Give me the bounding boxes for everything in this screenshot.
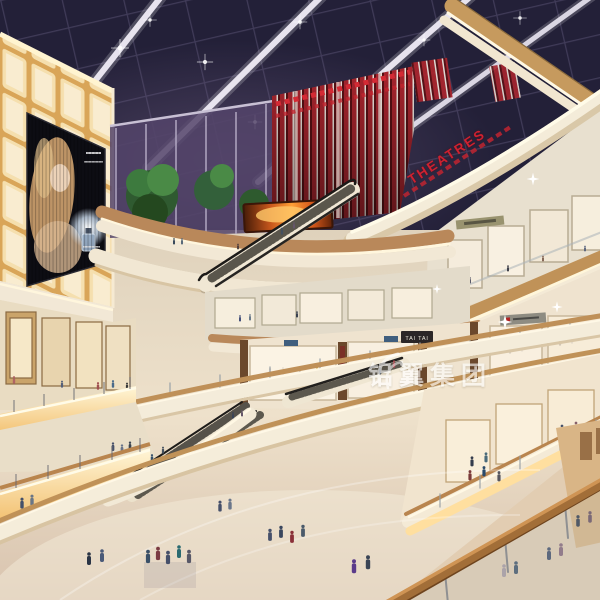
red-slat-panel [411, 58, 452, 103]
store-sign-blue [384, 336, 398, 342]
store-sign-blue [284, 340, 298, 346]
mall-atrium-scene: TAI TAI [0, 0, 600, 600]
svg-text:TAI TAI: TAI TAI [405, 336, 428, 342]
tai-tai-sign: TAI TAI [401, 331, 433, 343]
mall-atrium-render: TAI TAI [0, 0, 600, 600]
